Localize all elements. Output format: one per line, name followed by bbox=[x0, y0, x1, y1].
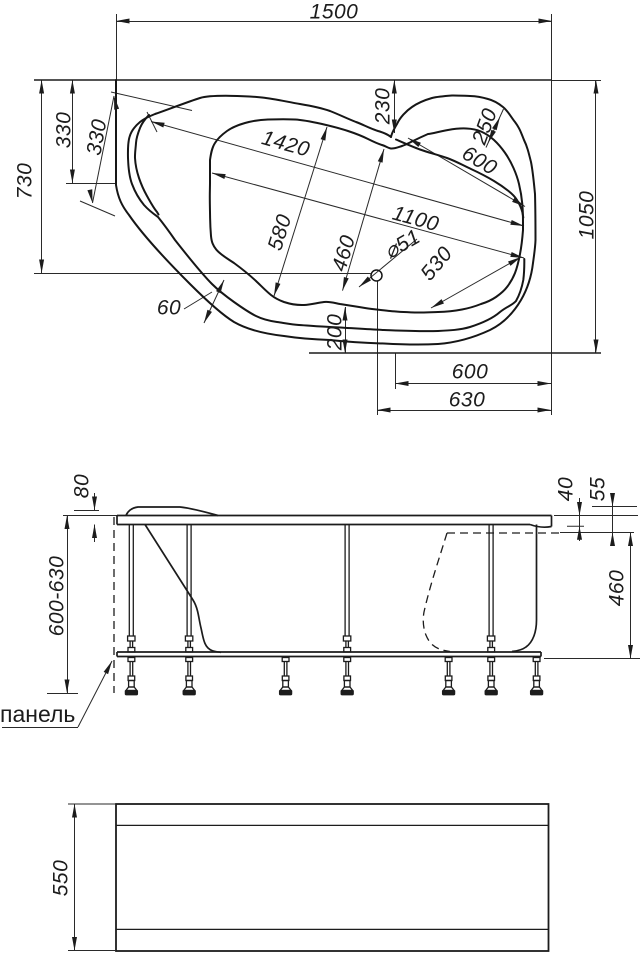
svg-text:200: 200 bbox=[324, 314, 347, 352]
svg-text:730: 730 bbox=[14, 163, 37, 200]
svg-text:460: 460 bbox=[606, 570, 629, 607]
svg-text:55: 55 bbox=[587, 477, 610, 501]
svg-text:550: 550 bbox=[50, 860, 73, 897]
svg-text:80: 80 bbox=[71, 474, 94, 498]
svg-text:1050: 1050 bbox=[576, 191, 599, 240]
svg-text:330: 330 bbox=[53, 112, 76, 149]
svg-text:40: 40 bbox=[555, 477, 578, 501]
svg-text:600: 600 bbox=[458, 142, 501, 180]
svg-text:530: 530 bbox=[416, 242, 457, 285]
svg-text:1500: 1500 bbox=[310, 1, 359, 24]
svg-text:60: 60 bbox=[157, 297, 181, 320]
svg-text:600: 600 bbox=[452, 361, 489, 384]
svg-text:230: 230 bbox=[372, 88, 395, 126]
svg-text:330: 330 bbox=[82, 117, 111, 157]
svg-text:580: 580 bbox=[264, 211, 297, 253]
svg-text:600-630: 600-630 bbox=[46, 556, 69, 637]
svg-text:1420: 1420 bbox=[259, 126, 312, 161]
svg-text:630: 630 bbox=[449, 389, 486, 412]
svg-text:460: 460 bbox=[328, 233, 360, 275]
svg-text:панель: панель bbox=[0, 701, 75, 727]
